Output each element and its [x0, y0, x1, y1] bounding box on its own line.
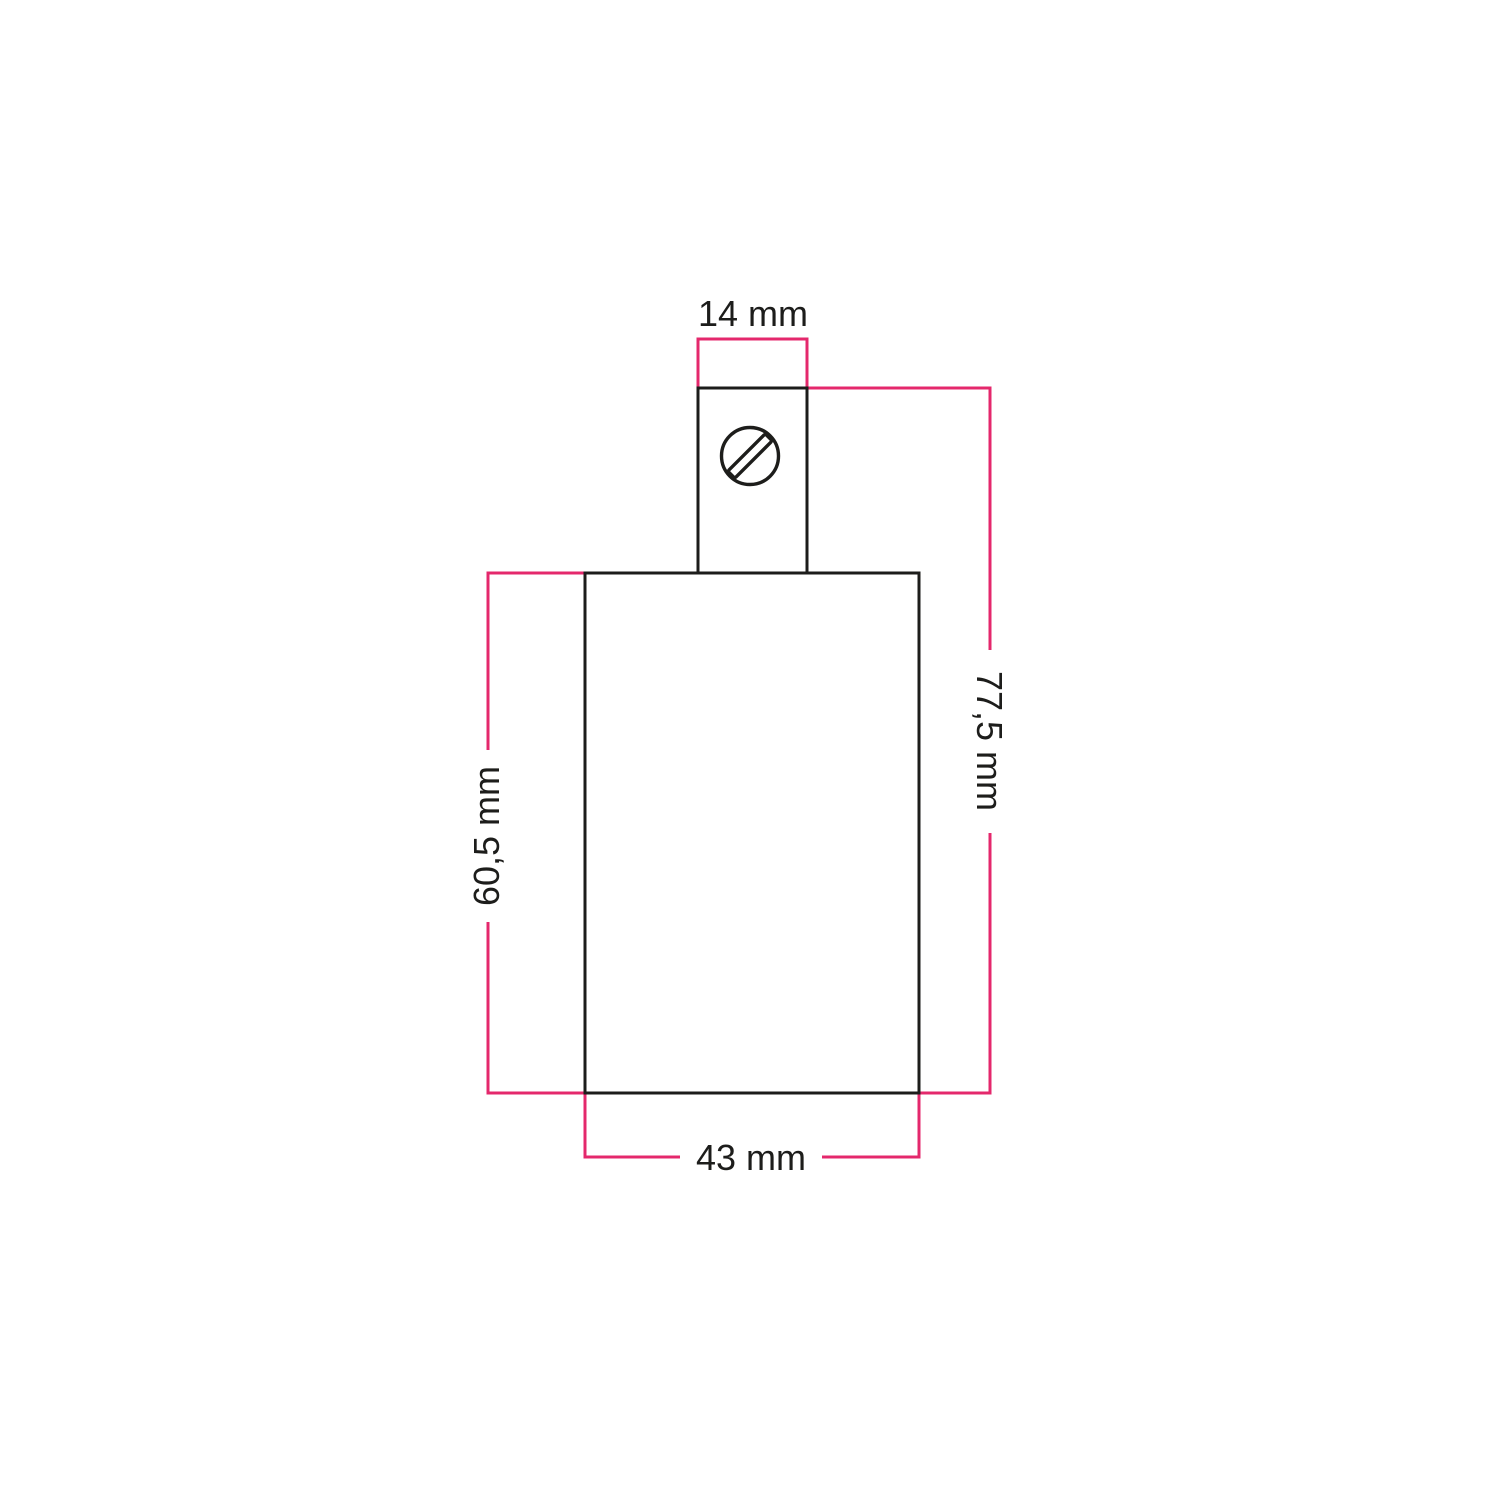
- technical-drawing-canvas: 14 mm 77,5 mm 60,5 mm 43 mm: [0, 0, 1500, 1500]
- dimension-label-body-width: 43 mm: [696, 1140, 806, 1176]
- screw-icon: [722, 428, 779, 485]
- dimension-label-body-height: 60,5 mm: [469, 766, 505, 906]
- product-outline: [585, 388, 919, 1093]
- dimension-line-total-height: [807, 388, 990, 1093]
- screw-slot: [728, 434, 773, 479]
- dimension-line-clamp-width: [698, 339, 807, 388]
- dimension-label-total-height: 77,5 mm: [971, 671, 1007, 811]
- screw-head-circle: [722, 428, 779, 485]
- dimension-drawing: [0, 0, 1500, 1500]
- lamp-holder-body-outline: [585, 573, 919, 1093]
- cable-clamp-outline: [698, 388, 807, 573]
- dimension-label-clamp-width: 14 mm: [698, 296, 808, 332]
